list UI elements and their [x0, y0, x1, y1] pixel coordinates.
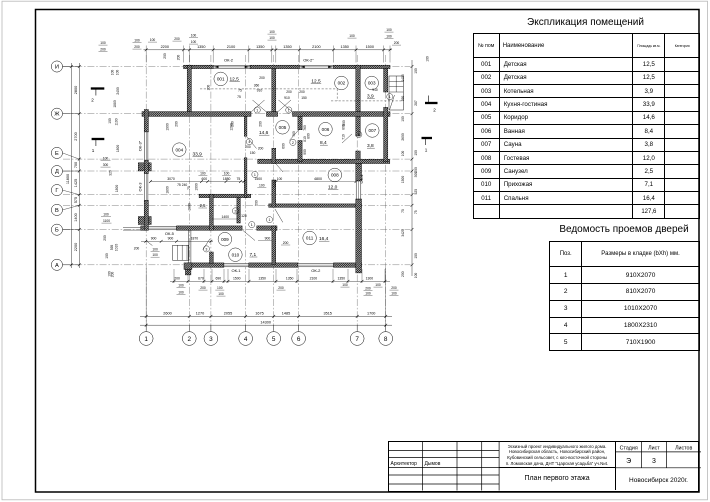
svg-text:910: 910 — [284, 96, 290, 100]
svg-text:950: 950 — [401, 96, 405, 102]
svg-text:ОК-4: ОК-4 — [359, 174, 364, 184]
svg-text:1: 1 — [269, 218, 271, 222]
svg-text:360: 360 — [254, 83, 260, 87]
svg-text:7: 7 — [355, 336, 359, 343]
svg-text:2200: 2200 — [74, 243, 78, 251]
svg-text:В: В — [55, 208, 59, 214]
svg-text:900: 900 — [151, 236, 157, 240]
svg-text:1880: 1880 — [113, 100, 117, 108]
svg-text:5: 5 — [272, 336, 276, 343]
svg-text:100: 100 — [269, 36, 275, 40]
svg-text:75: 75 — [238, 88, 242, 92]
svg-text:1800: 1800 — [116, 145, 120, 153]
svg-text:1485: 1485 — [282, 311, 290, 315]
svg-text:2: 2 — [188, 336, 192, 343]
svg-text:1200: 1200 — [230, 123, 234, 131]
svg-text:200: 200 — [414, 167, 418, 173]
svg-text:1350: 1350 — [258, 276, 266, 280]
svg-text:3425: 3425 — [401, 229, 405, 237]
svg-text:100: 100 — [365, 292, 371, 296]
svg-text:Б: Б — [55, 228, 59, 234]
svg-text:2055: 2055 — [224, 311, 232, 315]
svg-text:1400: 1400 — [222, 215, 230, 219]
svg-text:800: 800 — [342, 120, 346, 126]
svg-text:003: 003 — [368, 81, 376, 86]
svg-text:007: 007 — [368, 128, 376, 133]
svg-text:1500: 1500 — [366, 45, 374, 49]
svg-text:ОК-1: ОК-1 — [232, 268, 242, 273]
svg-text:100: 100 — [103, 157, 109, 161]
svg-text:1350: 1350 — [340, 45, 348, 49]
svg-text:320: 320 — [109, 170, 113, 176]
svg-text:200: 200 — [134, 246, 140, 250]
svg-text:200: 200 — [394, 41, 400, 45]
svg-text:1700: 1700 — [367, 311, 375, 315]
svg-text:1300: 1300 — [366, 276, 374, 280]
svg-text:200: 200 — [401, 271, 405, 277]
svg-text:14300: 14300 — [260, 320, 271, 324]
svg-text:900: 900 — [303, 149, 307, 155]
svg-text:100: 100 — [224, 172, 230, 176]
svg-text:75: 75 — [177, 183, 181, 187]
svg-text:1: 1 — [92, 148, 95, 153]
svg-text:2700: 2700 — [74, 132, 78, 140]
svg-text:4800: 4800 — [314, 177, 322, 181]
svg-text:600: 600 — [201, 177, 207, 181]
svg-text:100: 100 — [401, 116, 405, 122]
svg-text:3: 3 — [652, 458, 656, 465]
svg-text:2100: 2100 — [227, 45, 235, 49]
svg-text:1400: 1400 — [74, 213, 78, 221]
svg-text:100: 100 — [342, 283, 348, 287]
svg-text:006: 006 — [322, 127, 330, 132]
svg-text:1403: 1403 — [401, 74, 405, 82]
svg-text:2100: 2100 — [312, 45, 320, 49]
svg-text:100: 100 — [375, 283, 381, 287]
svg-text:4: 4 — [244, 336, 248, 343]
svg-text:2400: 2400 — [116, 87, 120, 95]
svg-text:1270: 1270 — [196, 311, 204, 315]
svg-text:2: 2 — [91, 98, 94, 103]
svg-text:Листов: Листов — [675, 446, 692, 452]
svg-text:1350: 1350 — [286, 276, 294, 280]
svg-text:525: 525 — [414, 189, 418, 195]
svg-text:150: 150 — [301, 96, 307, 100]
svg-text:Новосибирск 2020г.: Новосибирск 2020г. — [629, 476, 688, 484]
svg-text:100: 100 — [150, 38, 156, 42]
svg-text:200: 200 — [163, 53, 167, 59]
svg-text:100: 100 — [100, 41, 106, 45]
svg-text:760: 760 — [303, 125, 307, 131]
svg-text:200: 200 — [365, 287, 371, 291]
svg-text:А: А — [55, 263, 59, 269]
svg-text:100: 100 — [152, 253, 158, 257]
svg-text:ОК-3": ОК-3" — [138, 140, 143, 151]
svg-text:ОК-2": ОК-2" — [303, 58, 314, 63]
svg-text:1100: 1100 — [103, 219, 110, 223]
svg-text:2,5: 2,5 — [200, 203, 206, 208]
svg-text:100: 100 — [414, 150, 418, 156]
svg-text:200: 200 — [200, 286, 206, 290]
svg-text:1880: 1880 — [223, 177, 231, 181]
svg-text:150: 150 — [250, 151, 256, 155]
svg-text:002: 002 — [338, 81, 346, 86]
svg-text:100: 100 — [134, 39, 140, 43]
svg-text:100: 100 — [111, 70, 115, 76]
svg-text:Архитектор: Архитектор — [390, 461, 417, 467]
svg-text:И: И — [55, 65, 59, 71]
svg-text:200: 200 — [207, 85, 211, 91]
svg-text:1470: 1470 — [273, 180, 277, 188]
svg-text:100: 100 — [425, 56, 429, 62]
svg-text:ОК-2: ОК-2 — [224, 58, 234, 63]
svg-text:1: 1 — [144, 336, 148, 343]
svg-text:004: 004 — [175, 147, 183, 152]
svg-text:1350: 1350 — [338, 276, 346, 280]
svg-text:100: 100 — [414, 273, 418, 279]
svg-text:Э: Э — [626, 458, 631, 465]
svg-text:240: 240 — [182, 183, 188, 187]
svg-text:1350: 1350 — [197, 45, 205, 49]
svg-text:2200: 2200 — [161, 45, 169, 49]
svg-text:200: 200 — [278, 286, 284, 290]
svg-text:2800: 2800 — [74, 86, 78, 94]
svg-text:2: 2 — [433, 108, 436, 113]
svg-text:6: 6 — [297, 336, 301, 343]
svg-text:1000: 1000 — [195, 183, 199, 191]
svg-text:011: 011 — [306, 236, 314, 241]
svg-text:1190: 1190 — [115, 118, 119, 125]
svg-text:200: 200 — [258, 146, 264, 150]
svg-text:1: 1 — [288, 108, 290, 112]
svg-text:200: 200 — [259, 121, 263, 127]
svg-text:100: 100 — [386, 28, 392, 32]
svg-text:2600: 2600 — [163, 311, 171, 315]
svg-text:900: 900 — [265, 236, 271, 240]
svg-text:200: 200 — [134, 45, 140, 49]
svg-text:75: 75 — [237, 95, 241, 99]
svg-text:100: 100 — [191, 40, 197, 44]
svg-text:Е: Е — [55, 151, 59, 157]
svg-text:ОК-2: ОК-2 — [311, 268, 321, 273]
svg-text:Ж: Ж — [54, 112, 60, 118]
svg-text:1: 1 — [251, 223, 253, 227]
svg-text:Д: Д — [55, 169, 59, 175]
svg-text:200: 200 — [245, 145, 251, 149]
svg-text:200: 200 — [175, 121, 179, 127]
svg-text:1800: 1800 — [166, 186, 170, 194]
svg-text:3070: 3070 — [167, 177, 175, 181]
svg-text:1010: 1010 — [115, 244, 119, 252]
svg-text:100: 100 — [217, 286, 223, 290]
svg-text:1: 1 — [389, 95, 391, 99]
svg-text:670: 670 — [198, 276, 204, 280]
svg-text:200: 200 — [177, 55, 181, 61]
svg-text:300: 300 — [414, 172, 418, 178]
svg-text:900: 900 — [168, 236, 174, 240]
svg-text:1675: 1675 — [255, 311, 263, 315]
svg-text:100: 100 — [269, 30, 275, 34]
svg-text:4: 4 — [248, 140, 250, 144]
svg-text:2: 2 — [234, 209, 236, 213]
svg-text:100: 100 — [349, 34, 355, 38]
svg-text:595: 595 — [110, 245, 114, 251]
svg-text:100: 100 — [178, 291, 184, 295]
svg-text:001: 001 — [217, 77, 225, 82]
svg-text:1: 1 — [256, 108, 258, 112]
svg-text:1800: 1800 — [115, 185, 119, 193]
svg-text:100: 100 — [116, 70, 120, 76]
svg-text:100: 100 — [178, 284, 184, 288]
svg-text:200: 200 — [255, 200, 259, 206]
svg-text:200: 200 — [259, 76, 265, 80]
svg-text:200: 200 — [391, 286, 397, 290]
svg-text:100: 100 — [152, 248, 158, 252]
svg-text:1425: 1425 — [74, 179, 78, 187]
svg-text:3: 3 — [205, 247, 207, 251]
svg-text:200: 200 — [174, 37, 180, 41]
svg-text:1500: 1500 — [233, 276, 241, 280]
svg-text:200: 200 — [286, 90, 292, 94]
svg-text:100: 100 — [108, 118, 112, 124]
svg-text:760: 760 — [292, 131, 296, 137]
svg-text:120: 120 — [241, 214, 247, 218]
svg-text:300: 300 — [103, 163, 109, 167]
svg-text:Г: Г — [55, 188, 58, 194]
svg-text:1350: 1350 — [256, 45, 264, 49]
svg-text:575: 575 — [74, 197, 78, 203]
svg-text:100: 100 — [401, 151, 405, 157]
svg-text:1900: 1900 — [166, 123, 170, 131]
svg-text:75: 75 — [414, 210, 418, 214]
svg-text:100: 100 — [259, 184, 265, 188]
svg-text:3515: 3515 — [323, 311, 331, 315]
svg-text:200: 200 — [103, 235, 107, 241]
svg-text:8: 8 — [384, 336, 388, 343]
svg-text:1500: 1500 — [401, 176, 405, 184]
svg-text:1350: 1350 — [283, 45, 291, 49]
svg-text:75: 75 — [187, 186, 191, 190]
svg-text:287: 287 — [414, 100, 418, 106]
svg-text:910: 910 — [257, 89, 263, 93]
svg-text:100: 100 — [386, 35, 392, 39]
svg-text:Стадия: Стадия — [620, 446, 638, 452]
svg-text:100: 100 — [200, 172, 206, 176]
svg-text:11800: 11800 — [66, 174, 70, 184]
svg-text:600: 600 — [282, 143, 286, 149]
svg-text:910: 910 — [372, 88, 378, 92]
svg-text:2: 2 — [292, 141, 294, 145]
svg-text:1800: 1800 — [188, 203, 192, 211]
svg-text:2100: 2100 — [310, 276, 318, 280]
svg-text:100: 100 — [391, 292, 397, 296]
svg-text:100: 100 — [277, 177, 283, 181]
svg-text:100: 100 — [218, 292, 224, 296]
svg-text:1: 1 — [425, 148, 428, 153]
svg-text:690: 690 — [215, 276, 221, 280]
svg-text:75: 75 — [401, 209, 405, 213]
svg-text:Дымов: Дымов — [424, 461, 440, 467]
svg-text:200: 200 — [174, 276, 180, 280]
svg-text:100: 100 — [191, 34, 197, 38]
svg-text:008: 008 — [331, 173, 339, 178]
svg-text:009: 009 — [221, 237, 229, 242]
svg-text:1870: 1870 — [191, 236, 199, 240]
svg-text:005: 005 — [279, 125, 287, 130]
svg-text:100: 100 — [414, 253, 418, 259]
svg-text:200: 200 — [283, 241, 289, 245]
svg-text:5: 5 — [358, 133, 360, 137]
svg-text:Лист: Лист — [648, 446, 660, 452]
svg-text:100: 100 — [414, 68, 418, 74]
svg-text:100: 100 — [103, 213, 109, 217]
svg-text:ОК-3: ОК-3 — [138, 182, 143, 192]
svg-text:710: 710 — [341, 134, 345, 140]
svg-text:800: 800 — [307, 133, 311, 139]
svg-text:200: 200 — [111, 272, 115, 278]
svg-text:700: 700 — [74, 162, 78, 168]
svg-text:1500: 1500 — [255, 177, 263, 181]
svg-text:100: 100 — [105, 253, 109, 259]
svg-text:200: 200 — [100, 48, 106, 52]
svg-text:2600: 2600 — [401, 133, 405, 141]
svg-text:200: 200 — [299, 90, 305, 94]
svg-text:3: 3 — [209, 336, 213, 343]
svg-text:010: 010 — [232, 252, 240, 257]
svg-text:75: 75 — [237, 177, 241, 181]
